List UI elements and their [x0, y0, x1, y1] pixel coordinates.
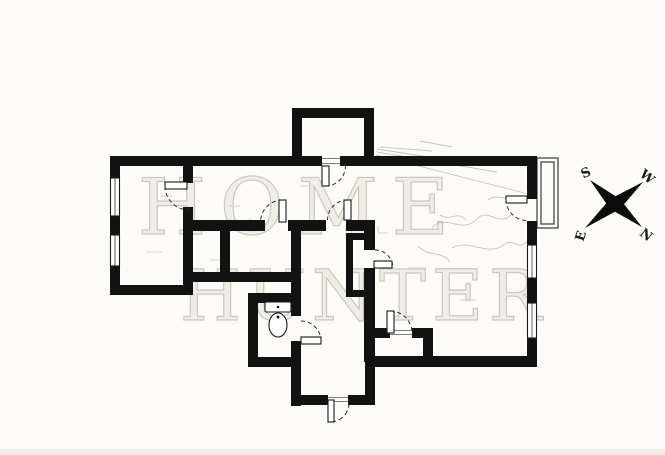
window-icon-right-2 — [528, 303, 537, 338]
floor-plan-page: HOME HUNTER — [0, 0, 665, 455]
window-icon-left-2 — [111, 235, 120, 266]
scan-edge-strip — [0, 449, 665, 455]
window-icon-right-1 — [528, 245, 537, 278]
floor-plan-svg: HOME HUNTER — [0, 0, 665, 455]
window-icon-left-1 — [111, 178, 120, 216]
